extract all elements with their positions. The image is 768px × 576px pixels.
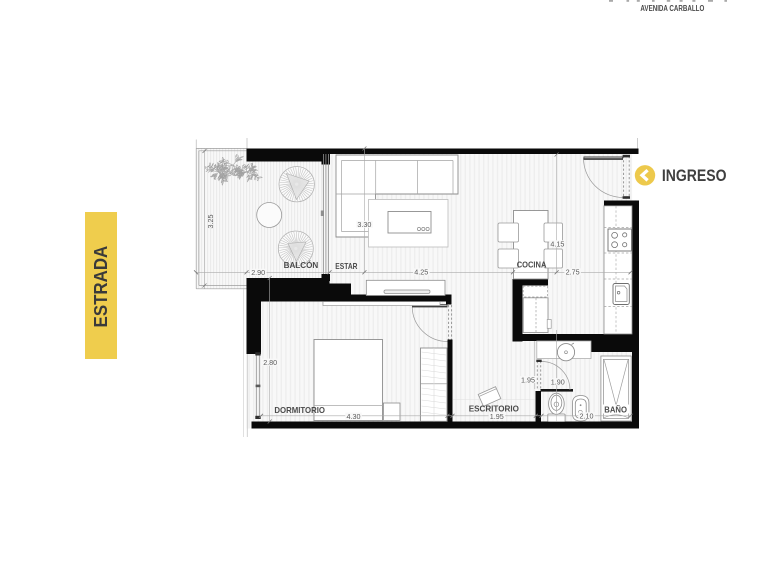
svg-text:ESCRITORIO: ESCRITORIO [469, 405, 520, 414]
svg-text:2.10: 2.10 [580, 412, 594, 421]
svg-text:4.25: 4.25 [414, 268, 428, 277]
svg-text:4.15: 4.15 [550, 240, 564, 249]
svg-text:4.30: 4.30 [347, 412, 361, 421]
svg-text:2.80: 2.80 [263, 358, 277, 367]
svg-text:DORMITORIO: DORMITORIO [274, 406, 325, 415]
svg-text:AVENIDA CARBALLO: AVENIDA CARBALLO [640, 4, 704, 13]
svg-text:2.90: 2.90 [251, 268, 265, 277]
svg-text:BALCÓN: BALCÓN [284, 259, 319, 270]
svg-text:BAÑO: BAÑO [604, 405, 627, 415]
svg-text:ESTRADA: ESTRADA [90, 246, 111, 328]
svg-text:ESTAR: ESTAR [335, 262, 357, 271]
svg-text:1.90: 1.90 [551, 377, 565, 386]
svg-text:2.75: 2.75 [566, 268, 580, 277]
svg-text:1.95: 1.95 [521, 375, 535, 384]
svg-text:INGRESO: INGRESO [662, 167, 727, 185]
svg-text:COCINA: COCINA [517, 261, 547, 270]
svg-text:3.30: 3.30 [357, 220, 371, 229]
svg-text:3.25: 3.25 [206, 215, 215, 229]
